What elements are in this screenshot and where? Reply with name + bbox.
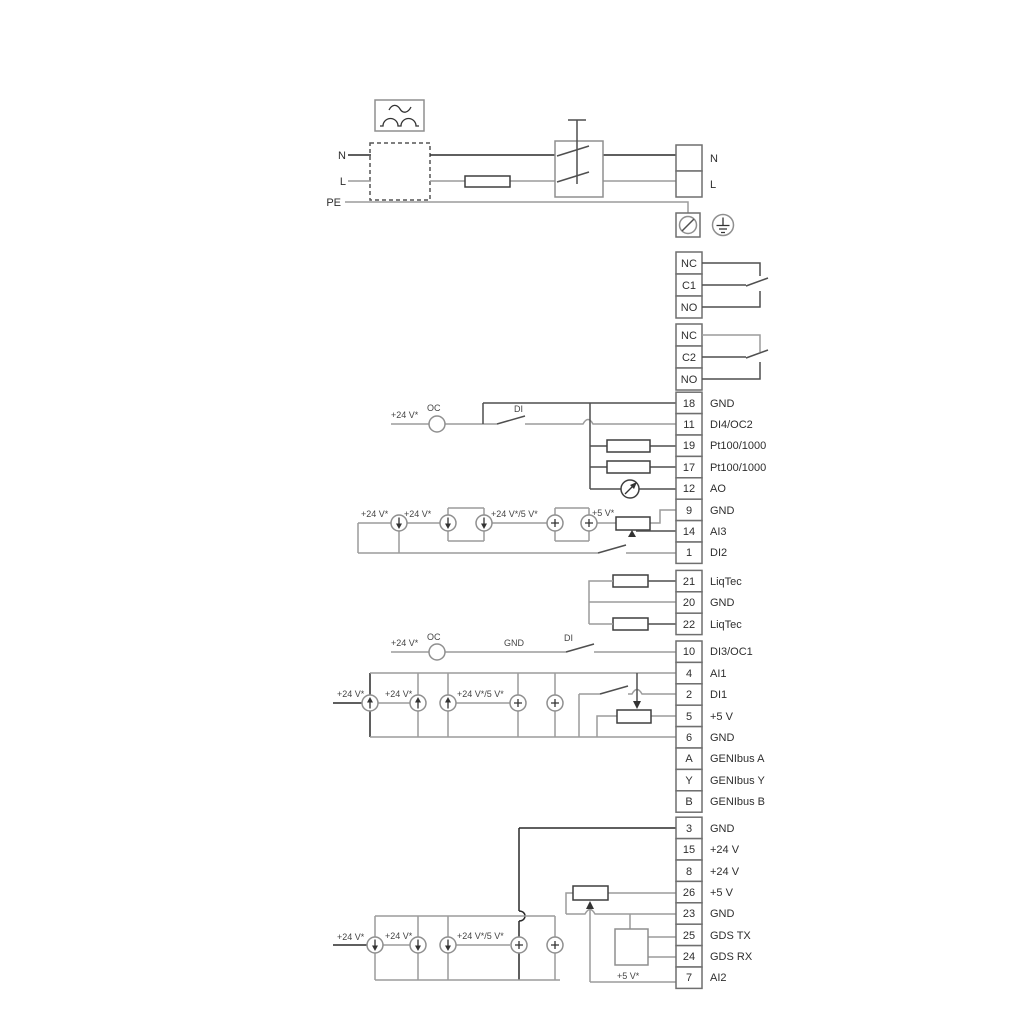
resistor-icon-pt100-17 <box>607 461 650 473</box>
terminal-label: GND <box>710 908 735 920</box>
terminal-l <box>676 171 702 197</box>
ai3-source-group: +24 V* +24 V* +24 V*/5 V* +5 V* <box>358 508 676 553</box>
gds-5v-label: +5 V* <box>617 971 640 981</box>
terminal-row: 24 GDS RX <box>676 946 753 967</box>
relay1-contact-blade <box>746 278 768 286</box>
terminal-number: 7 <box>686 972 692 984</box>
protective-earth-icon <box>713 215 734 236</box>
label-n-right: N <box>710 153 718 165</box>
ai1-source-group: +24 V* +24 V* +24 V*/5 V* <box>333 673 676 737</box>
terminal-label: +5 V <box>710 711 734 723</box>
label-l-right: L <box>710 179 716 191</box>
terminal-row: 9 GND <box>676 499 735 520</box>
terminal-number: 3 <box>686 823 692 835</box>
fuse-icon <box>465 176 510 187</box>
relay2-nc-wire <box>702 335 760 352</box>
potentiometer-icon <box>617 710 651 723</box>
terminal-label: +5 V <box>710 887 734 899</box>
ai2-24v-label-2: +24 V* <box>385 931 413 941</box>
current-source-icon <box>440 937 456 953</box>
supply-unit-dashed-box <box>370 143 430 200</box>
voltage-source-icon <box>547 937 563 953</box>
terminal-row: 15 +24 V <box>676 839 740 860</box>
terminal-row: 7 AI2 <box>676 967 727 988</box>
ai1-24v-label-1: +24 V* <box>337 689 365 699</box>
terminal-row: 5 +5 V <box>676 705 734 726</box>
label-pe: PE <box>326 197 341 209</box>
terminal-label: GENIbus A <box>710 753 765 765</box>
power-section: N L PE N L <box>326 100 733 237</box>
ai3-24v-label-2: +24 V* <box>404 509 432 519</box>
terminal-label: DI3/OC1 <box>710 646 753 658</box>
gds-module-box <box>615 929 648 965</box>
terminal-number: 22 <box>683 619 695 631</box>
terminal-number: 5 <box>686 711 692 723</box>
terminal-n <box>676 145 702 171</box>
open-collector-icon <box>429 416 445 432</box>
terminal-number: B <box>685 796 692 808</box>
relay1-nc-label: NC <box>681 258 697 270</box>
terminal-row: 4 AI1 <box>676 662 727 683</box>
terminal-label: +24 V <box>710 866 740 878</box>
relay1-wires <box>702 263 760 307</box>
terminal-number: 15 <box>683 844 695 856</box>
terminal-label: GDS TX <box>710 930 751 942</box>
potentiometer-wiper-arrow <box>633 701 641 709</box>
di3-sensor-group: +24 V* OC GND DI <box>391 632 676 660</box>
terminal-label: LiqTec <box>710 619 742 631</box>
terminal-number: 24 <box>683 951 695 963</box>
terminal-row: 14 AI3 <box>676 521 727 542</box>
di3-gnd-label: GND <box>504 638 525 648</box>
terminal-label: GND <box>710 505 735 517</box>
terminal-row: 26 +5 V <box>676 881 734 902</box>
resistor-icon-liqtec-21 <box>613 575 648 587</box>
current-source-icon <box>410 937 426 953</box>
resistor-icon-pt100-19 <box>607 440 650 452</box>
di3-24v-label: +24 V* <box>391 638 419 648</box>
ai2-24v5v-label: +24 V*/5 V* <box>457 931 504 941</box>
terminal-number: 14 <box>683 526 695 538</box>
relay2-nc-label: NC <box>681 330 697 342</box>
terminal-label: GND <box>710 732 735 744</box>
potentiometer-wiper-arrow <box>586 901 594 909</box>
terminal-row: 10 DI3/OC1 <box>676 641 753 662</box>
terminal-label: AI3 <box>710 526 727 538</box>
di3-oc-label: OC <box>427 632 441 642</box>
terminal-number: 12 <box>683 483 695 495</box>
potentiometer-icon <box>616 517 650 530</box>
terminal-block-io2: 21 LiqTec 20 GND 22 LiqTec <box>676 570 742 634</box>
terminal-row: Y GENIbus Y <box>676 769 765 790</box>
ai1-24v5v-label: +24 V*/5 V* <box>457 689 504 699</box>
terminal-row: 12 AO <box>676 478 726 499</box>
label-l-left: L <box>340 176 346 188</box>
current-source-icon <box>440 515 456 531</box>
current-source-icon <box>440 695 456 711</box>
terminal-row: 20 GND <box>676 592 735 613</box>
terminal-label: GDS RX <box>710 951 753 963</box>
di4-24v-label: +24 V* <box>391 410 419 420</box>
di4-switch-icon <box>497 416 525 424</box>
terminal-label: DI4/OC2 <box>710 419 753 431</box>
relay1-c1-label: C1 <box>682 280 696 292</box>
terminal-label: +24 V <box>710 844 740 856</box>
terminal-number: 19 <box>683 440 695 452</box>
di1-switch-icon <box>600 686 628 694</box>
terminal-number: 20 <box>683 597 695 609</box>
label-n-left: N <box>338 150 346 162</box>
terminal-number: 25 <box>683 930 695 942</box>
di2-switch-icon <box>598 545 626 553</box>
voltage-source-icon <box>510 695 526 711</box>
di4-di-label: DI <box>514 404 523 414</box>
terminal-row: 6 GND <box>676 727 735 748</box>
ai3-24v-label-1: +24 V* <box>361 509 389 519</box>
terminal-block-io1: 18 GND 11 DI4/OC2 19 Pt100/1000 17 Pt100… <box>676 392 766 563</box>
mains-terminal-block: N L <box>676 145 718 197</box>
terminal-label: AO <box>710 483 726 495</box>
terminal-number: 10 <box>683 646 695 658</box>
relay2-contact-blade <box>746 350 768 358</box>
terminal-number: 21 <box>683 576 695 588</box>
terminal-label: LiqTec <box>710 576 742 588</box>
ai2-source-group: +24 V* +24 V* +24 V*/5 V* +5 V* <box>333 828 676 982</box>
terminal-row: 25 GDS TX <box>676 924 751 945</box>
resistor-icon-liqtec-22 <box>613 618 648 630</box>
terminal-label: DI2 <box>710 547 727 559</box>
current-source-icon <box>476 515 492 531</box>
terminal-number: Y <box>685 775 693 787</box>
current-source-icon <box>410 695 426 711</box>
relay1-block: NC C1 NO <box>676 252 768 318</box>
ac-supply-icon <box>375 100 424 131</box>
terminal-row: B GENIbus B <box>676 791 765 812</box>
terminal-row: 2 DI1 <box>676 684 727 705</box>
terminal-row: 23 GND <box>676 903 735 924</box>
voltage-source-icon <box>581 515 597 531</box>
voltage-source-icon <box>547 515 563 531</box>
terminal-row: A GENIbus A <box>676 748 765 769</box>
current-source-icon <box>391 515 407 531</box>
liqtec-group <box>589 575 676 630</box>
relay2-c2-label: C2 <box>682 352 696 364</box>
open-collector-icon <box>429 644 445 660</box>
terminal-block-io5: 3 GND 15 +24 V 8 +24 V 26 +5 V 23 GND 25… <box>676 817 753 988</box>
wire-l-pe <box>345 181 688 214</box>
terminal-number: 9 <box>686 505 692 517</box>
terminal-row: 18 GND <box>676 392 735 413</box>
terminal-row: 8 +24 V <box>676 860 740 881</box>
terminal-block-io4: 4 AI1 2 DI1 5 +5 V 6 GND A GENIbus A Y G… <box>676 662 765 812</box>
terminal-row: 21 LiqTec <box>676 570 742 591</box>
terminal-number: 23 <box>683 908 695 920</box>
terminal-number: 11 <box>683 419 694 431</box>
voltage-source-icon <box>547 695 563 711</box>
terminal-number: 6 <box>686 732 692 744</box>
terminal-number: 8 <box>686 866 692 878</box>
terminal-number: 26 <box>683 887 695 899</box>
ai3-5v-label: +5 V* <box>592 508 615 518</box>
relay2-wires <box>702 357 760 379</box>
terminal-number: A <box>685 753 693 765</box>
terminal-number: 17 <box>683 462 695 474</box>
terminal-row: 19 Pt100/1000 <box>676 435 766 456</box>
main-switch-icon <box>555 120 603 197</box>
current-source-icon <box>367 937 383 953</box>
di4-oc-label: OC <box>427 403 441 413</box>
potentiometer-wiper-arrow <box>628 530 636 537</box>
current-source-icon <box>362 695 378 711</box>
ai3-24v5v-label: +24 V*/5 V* <box>491 509 538 519</box>
relay1-no-label: NO <box>681 302 698 314</box>
terminal-number: 2 <box>686 689 692 701</box>
terminal-row: 22 LiqTec <box>676 613 742 634</box>
terminal-label: AI2 <box>710 972 727 984</box>
terminal-label: GND <box>710 823 735 835</box>
ai2-24v-label-1: +24 V* <box>337 932 365 942</box>
terminal-label: DI1 <box>710 689 727 701</box>
terminal-number: 1 <box>686 547 692 559</box>
terminal-label: Pt100/1000 <box>710 440 766 452</box>
terminal-number: 4 <box>686 668 692 680</box>
terminal-row: 3 GND <box>676 817 735 838</box>
terminal-row: 1 DI2 <box>676 542 727 563</box>
relay2-no-label: NO <box>681 374 698 386</box>
terminal-row: 17 Pt100/1000 <box>676 456 766 477</box>
relay2-block: NC C2 NO <box>676 324 768 390</box>
terminal-label: Pt100/1000 <box>710 462 766 474</box>
terminal-label: GND <box>710 398 735 410</box>
terminal-label: GENIbus B <box>710 796 765 808</box>
di4-sensor-group: +24 V* OC DI <box>391 403 676 498</box>
terminal-block-io3: 10 DI3/OC1 <box>676 641 753 662</box>
di3-switch-icon <box>566 644 594 652</box>
meter-icon <box>621 480 639 498</box>
voltage-source-icon <box>511 937 527 953</box>
di3-di-label: DI <box>564 633 573 643</box>
terminal-row: 11 DI4/OC2 <box>676 414 753 435</box>
wiring-diagram: N L PE N L NC C1 N <box>0 0 1024 1024</box>
terminal-label: AI1 <box>710 668 727 680</box>
terminal-number: 18 <box>683 398 695 410</box>
ai1-24v-label-2: +24 V* <box>385 689 413 699</box>
potentiometer-icon <box>573 886 608 900</box>
terminal-label: GENIbus Y <box>710 775 765 787</box>
terminal-label: GND <box>710 597 735 609</box>
earth-terminal-icon <box>676 213 700 237</box>
